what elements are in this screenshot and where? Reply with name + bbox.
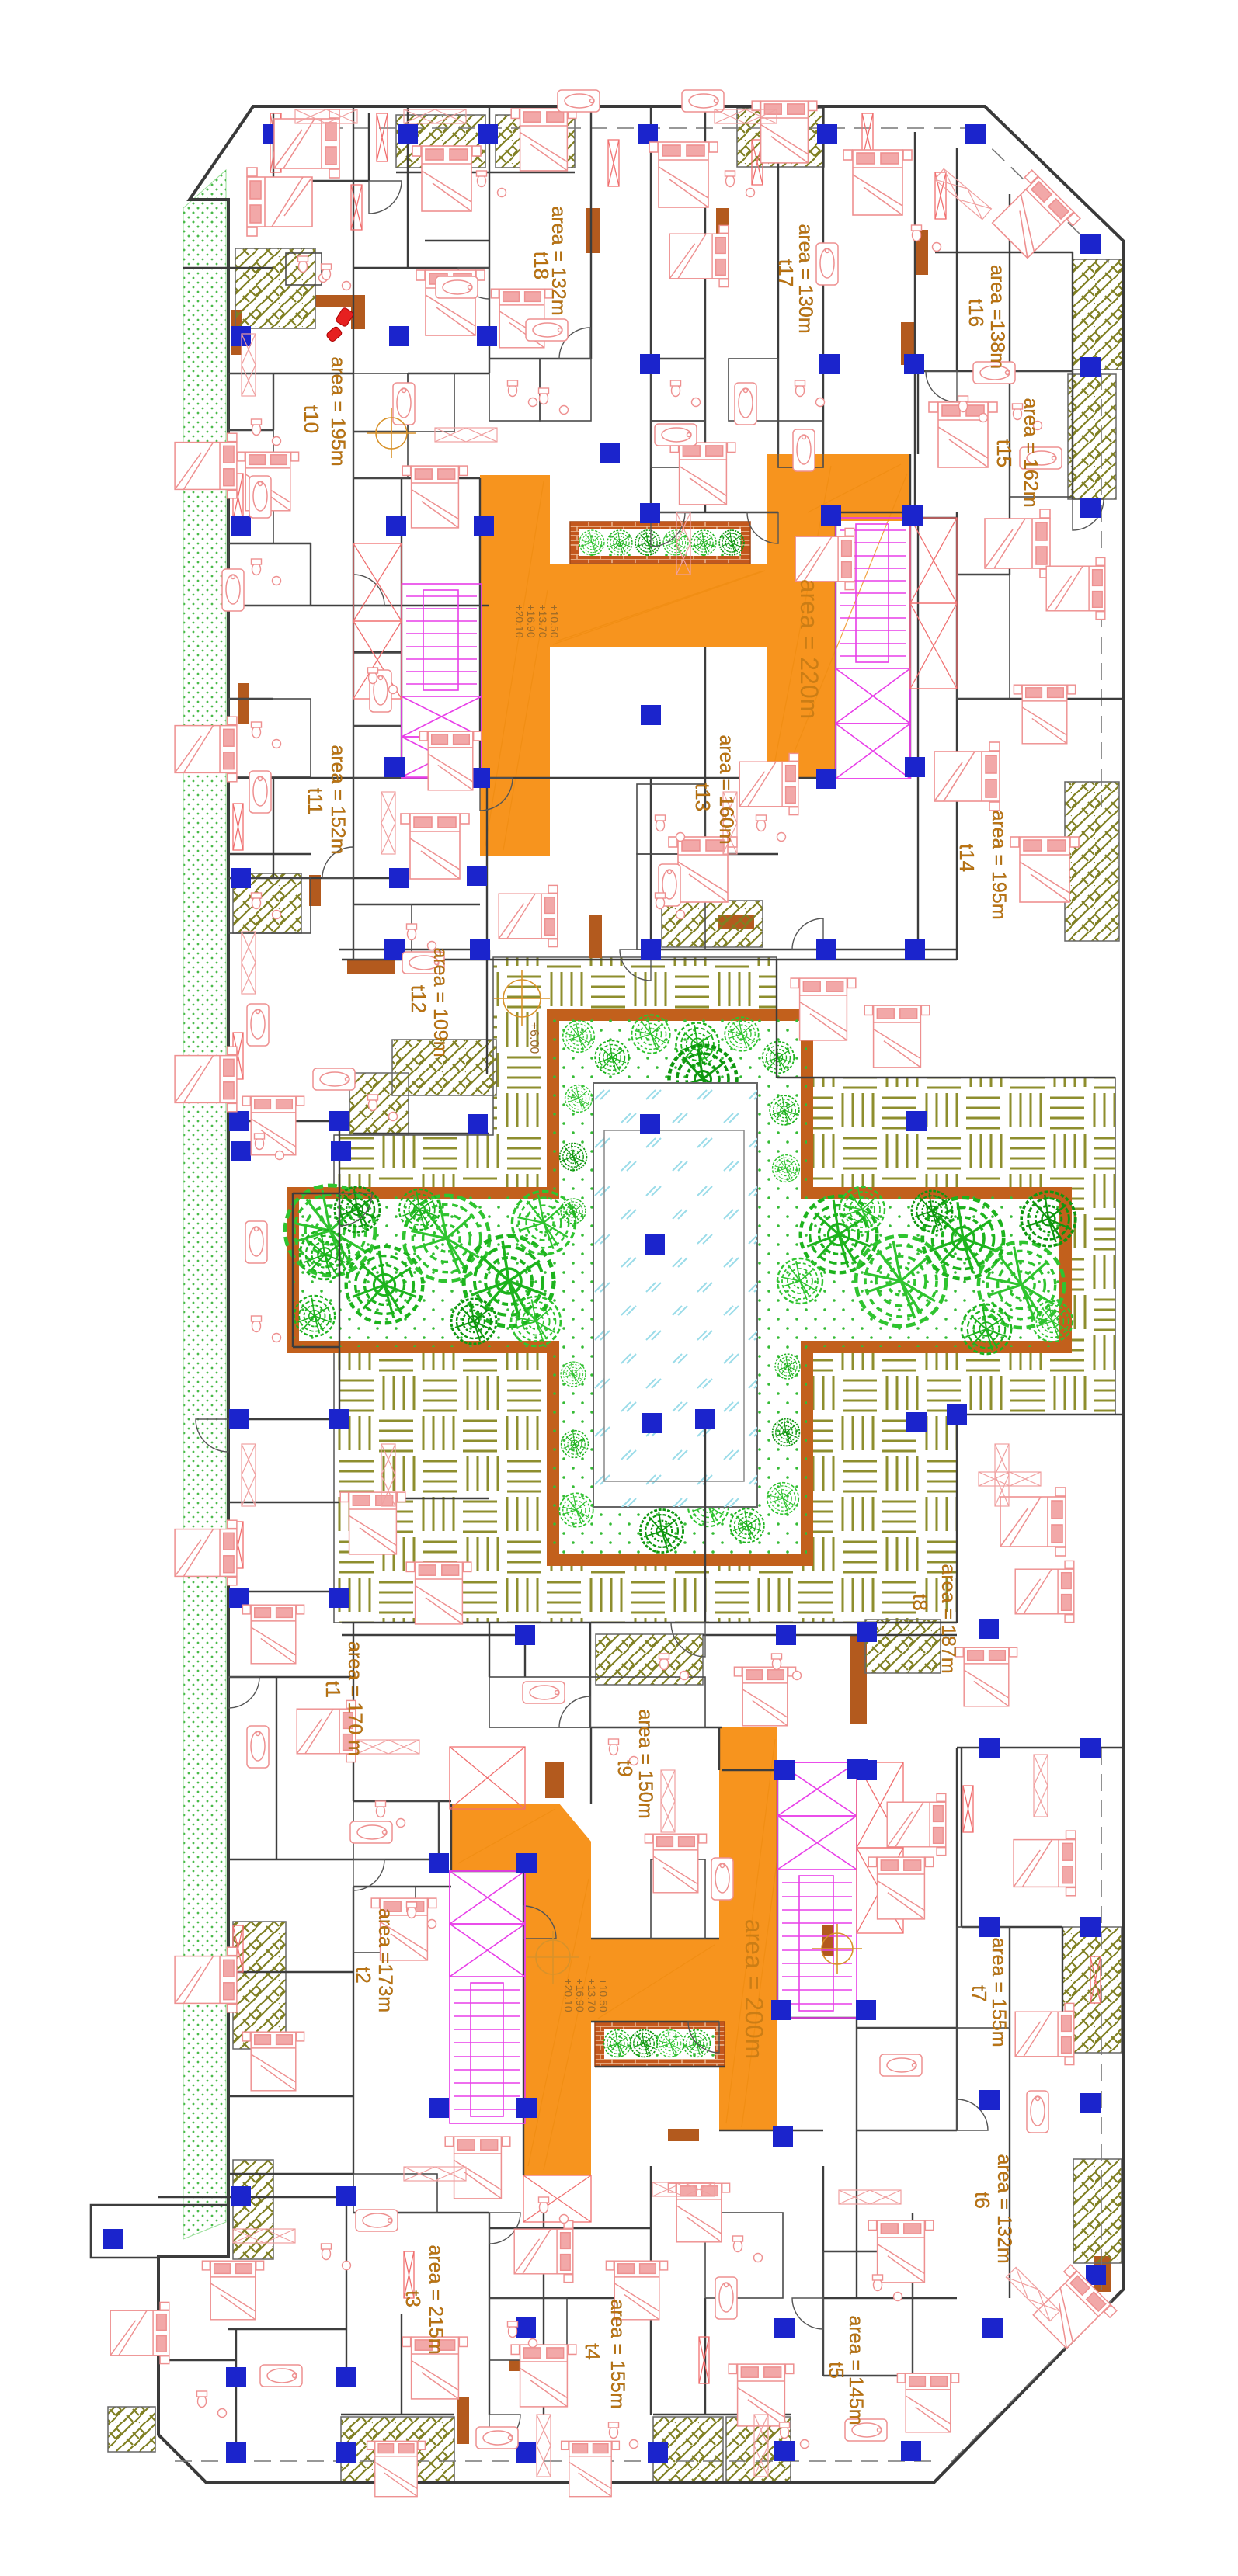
svg-text:+6.00: +6.00 — [527, 1022, 541, 1054]
svg-text:t18: t18 — [530, 252, 553, 279]
svg-text:area = 220m: area = 220m — [795, 579, 823, 720]
svg-text:t9: t9 — [614, 1760, 637, 1777]
svg-text:t11: t11 — [304, 788, 327, 814]
svg-text:area = 215m: area = 215m — [425, 2244, 447, 2354]
svg-text:t2: t2 — [352, 1967, 375, 1984]
svg-text:+20.10: +20.10 — [513, 604, 526, 637]
svg-text:area = 170 m: area = 170 m — [344, 1641, 366, 1756]
svg-text:area =173m: area =173m — [374, 1908, 396, 2012]
svg-text:t4: t4 — [581, 2343, 604, 2360]
svg-text:area = 195m: area = 195m — [988, 810, 1010, 919]
svg-text:t6: t6 — [971, 2192, 994, 2209]
svg-text:t1: t1 — [322, 1681, 345, 1698]
svg-text:+10.50: +10.50 — [548, 604, 561, 637]
svg-text:t17: t17 — [774, 259, 798, 287]
svg-text:area = 162m: area = 162m — [1020, 398, 1042, 507]
svg-text:+13.70: +13.70 — [586, 1978, 598, 2012]
svg-text:+10.50: +10.50 — [597, 1978, 610, 2012]
svg-text:area = 187m: area = 187m — [937, 1564, 959, 1673]
svg-text:+16.90: +16.90 — [525, 604, 537, 637]
svg-text:t7: t7 — [968, 1985, 991, 2002]
svg-text:t3: t3 — [402, 2290, 425, 2307]
svg-text:+20.10: +20.10 — [562, 1978, 575, 2012]
svg-text:t5: t5 — [825, 2362, 848, 2379]
svg-text:t12: t12 — [407, 985, 430, 1013]
svg-text:area = 155m: area = 155m — [607, 2299, 628, 2408]
svg-text:t13: t13 — [691, 783, 715, 811]
svg-text:+16.90: +16.90 — [574, 1978, 586, 2012]
svg-text:t10: t10 — [300, 405, 323, 433]
svg-text:t14: t14 — [955, 844, 979, 872]
svg-text:area = 109m: area = 109m — [429, 947, 451, 1057]
svg-text:t15: t15 — [993, 439, 1016, 467]
svg-text:t16: t16 — [965, 299, 988, 327]
svg-text:t8: t8 — [909, 1594, 932, 1611]
svg-text:+13.70: +13.70 — [537, 604, 549, 637]
svg-text:area = 160m: area = 160m — [715, 734, 737, 844]
svg-text:area = 150m: area = 150m — [635, 1709, 656, 1818]
svg-text:area = 132m: area = 132m — [993, 2154, 1015, 2263]
svg-text:area = 195m: area = 195m — [327, 356, 349, 466]
svg-text:area =138m: area =138m — [986, 265, 1008, 369]
svg-text:area = 200m: area = 200m — [740, 1919, 768, 2060]
svg-text:area = 152m: area = 152m — [327, 745, 349, 854]
